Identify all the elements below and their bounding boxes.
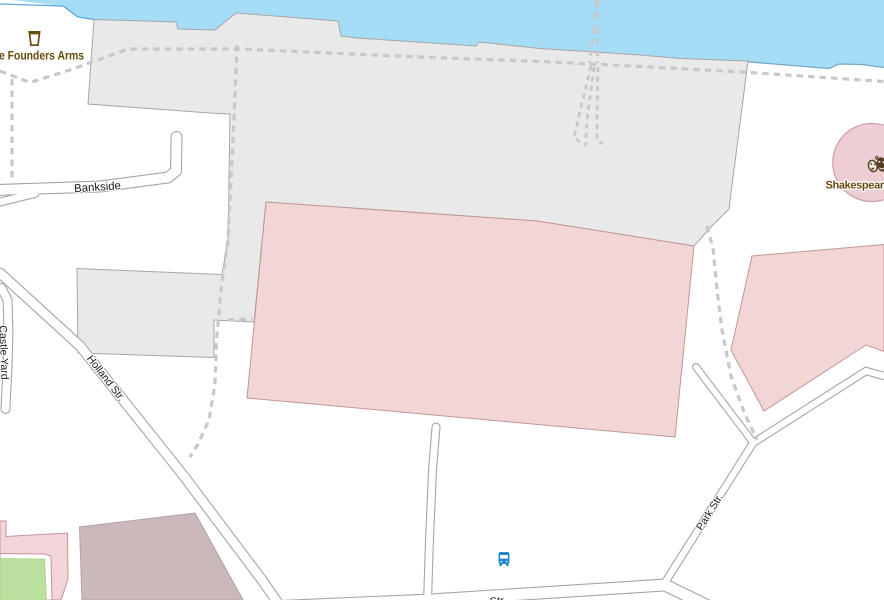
svg-text:e Founders Arms: e Founders Arms <box>0 49 84 63</box>
svg-text:Str.: Str. <box>489 595 506 600</box>
svg-text:Shakespeare's: Shakespeare's <box>826 179 884 191</box>
svg-text:Castle Yard: Castle Yard <box>0 325 10 380</box>
